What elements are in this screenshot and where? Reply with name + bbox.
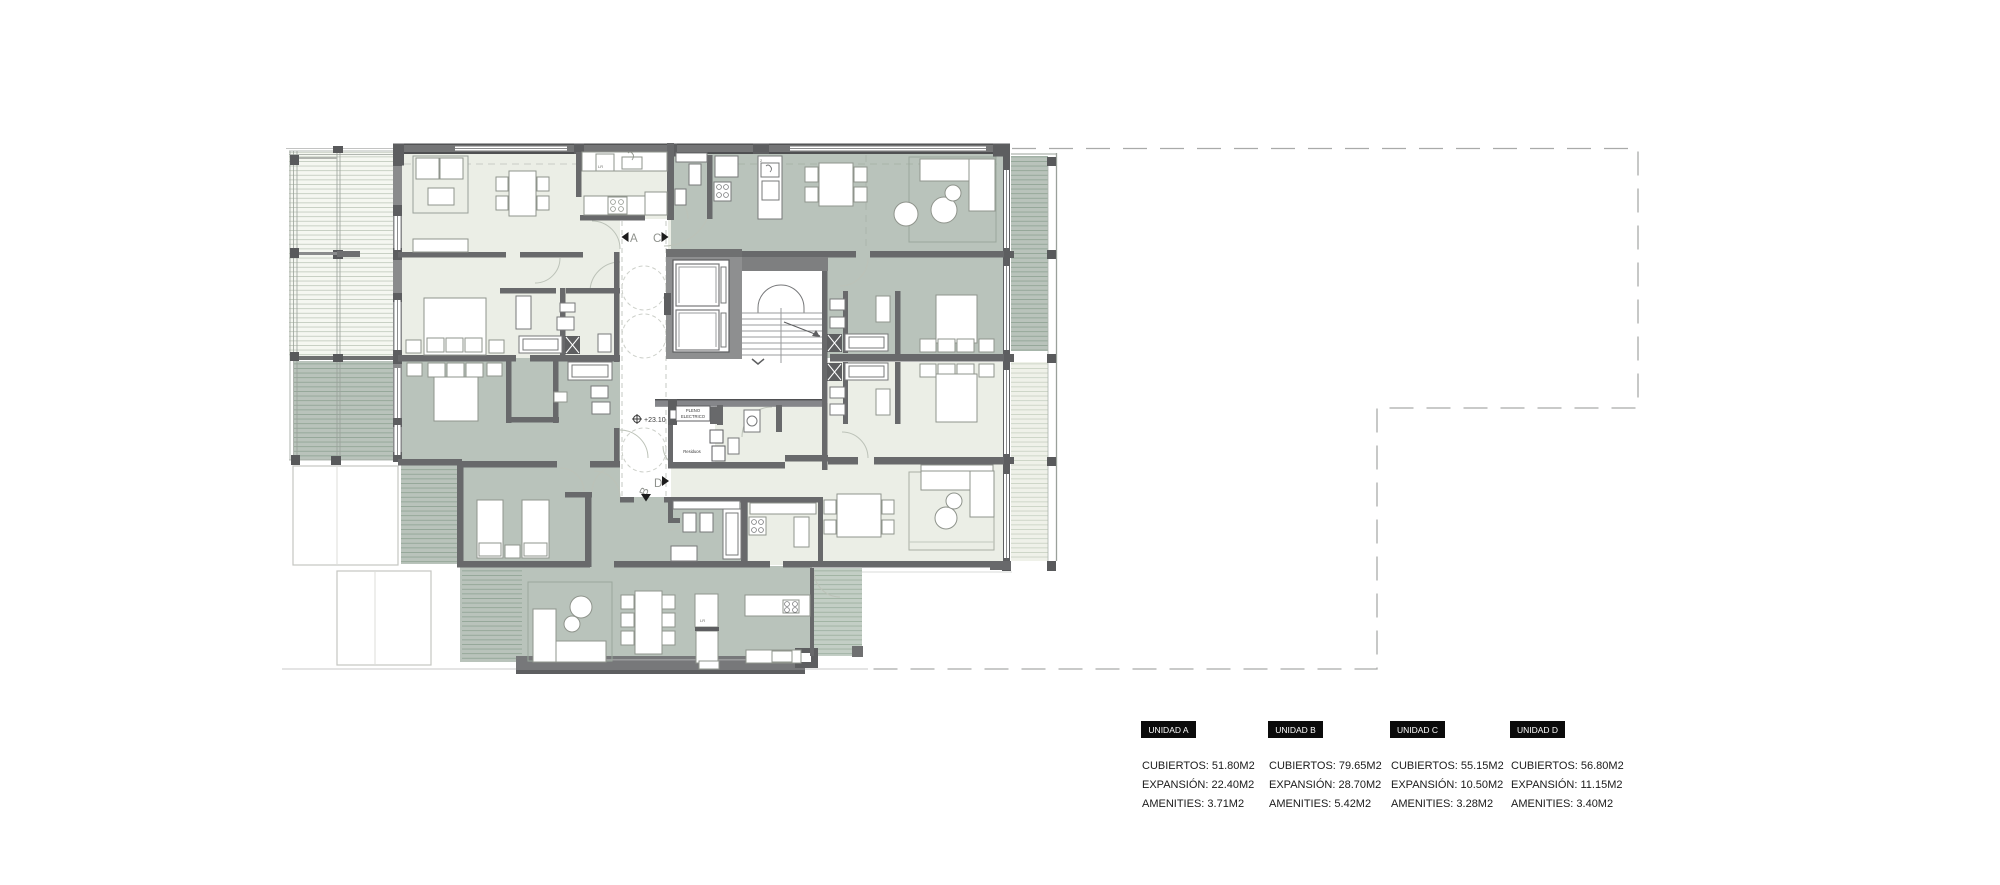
svg-text:ELECTRICO: ELECTRICO	[681, 414, 706, 419]
svg-text:CUBIERTOS: 79.65M2: CUBIERTOS: 79.65M2	[1269, 760, 1382, 772]
svg-text:AMENITIES: 3.28M2: AMENITIES: 3.28M2	[1391, 798, 1493, 810]
svg-text:EXPANSIÓN: 10.50M2: EXPANSIÓN: 10.50M2	[1391, 778, 1503, 791]
svg-text:D: D	[654, 478, 662, 490]
svg-text:C: C	[653, 233, 661, 245]
svg-text:AMENITIES: 5.42M2: AMENITIES: 5.42M2	[1269, 798, 1371, 810]
svg-text:A: A	[630, 233, 638, 245]
svg-text:AMENITIES: 3.71M2: AMENITIES: 3.71M2	[1142, 798, 1244, 810]
svg-text:UNIDAD A: UNIDAD A	[1148, 725, 1188, 735]
svg-text:LR: LR	[700, 618, 705, 623]
svg-text:EXPANSIÓN: 22.40M2: EXPANSIÓN: 22.40M2	[1142, 778, 1254, 791]
svg-text:UNIDAD D: UNIDAD D	[1517, 725, 1558, 735]
svg-text:LR: LR	[598, 164, 603, 169]
svg-text:+23.10: +23.10	[644, 417, 666, 424]
svg-text:UNIDAD B: UNIDAD B	[1275, 725, 1316, 735]
svg-text:PLENO: PLENO	[686, 408, 701, 413]
svg-text:EXPANSIÓN: 28.70M2: EXPANSIÓN: 28.70M2	[1269, 778, 1381, 791]
svg-text:UNIDAD C: UNIDAD C	[1397, 725, 1438, 735]
svg-text:CUBIERTOS: 55.15M2: CUBIERTOS: 55.15M2	[1391, 760, 1504, 772]
svg-text:AMENITIES: 3.40M2: AMENITIES: 3.40M2	[1511, 798, 1613, 810]
svg-text:Residuos: Residuos	[683, 449, 700, 454]
svg-text:EXPANSIÓN: 11.15M2: EXPANSIÓN: 11.15M2	[1511, 778, 1622, 791]
svg-text:CUBIERTOS: 51.80M2: CUBIERTOS: 51.80M2	[1142, 760, 1255, 772]
svg-text:CUBIERTOS: 56.80M2: CUBIERTOS: 56.80M2	[1511, 760, 1624, 772]
